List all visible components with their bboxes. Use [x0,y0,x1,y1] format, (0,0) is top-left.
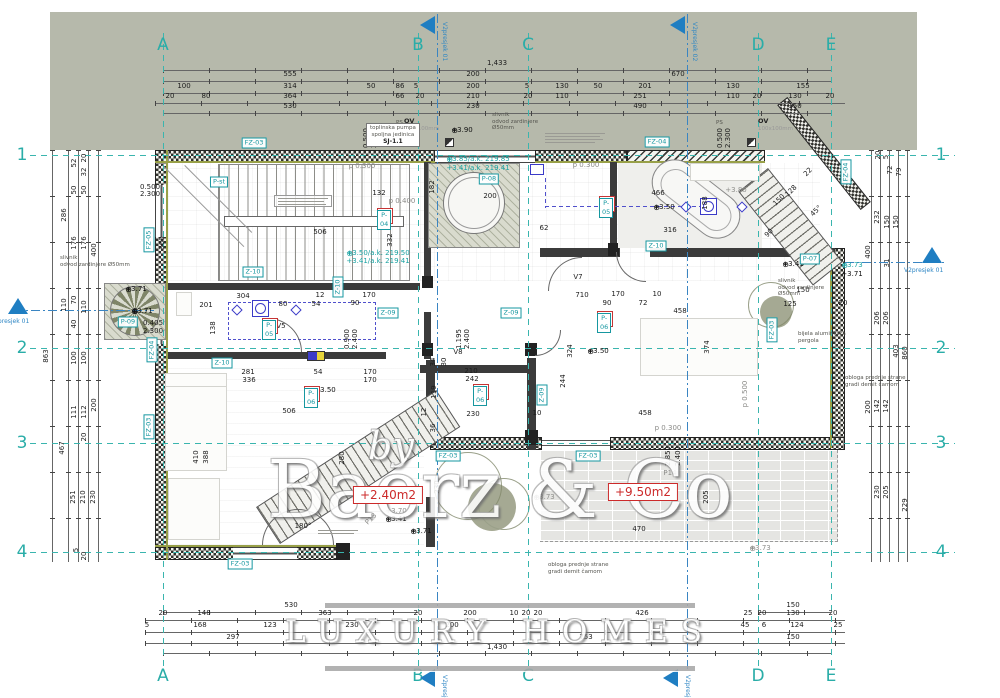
note-line: OV [758,118,793,126]
dim-label: 125 [783,300,796,308]
note-line: obloga prednje strane [548,562,609,569]
note-text: slivnikodvod zardinjereØ50mm [492,112,538,132]
dim-label: 130 [726,82,739,90]
room-type-tag: P-06 [473,386,487,406]
level-symbol-icon: ⊕ [533,493,540,502]
level-mark: ⊕+3.90 [451,126,472,134]
level-mark: ⊕+3.50 [587,347,608,355]
dim-label: 230 [873,485,881,498]
dim-label: 200 [463,609,476,617]
dim-label: 280 [338,451,346,464]
dim-label: 2.400 [674,446,682,466]
room-type-tag: P-05 [262,320,276,340]
dim-label: 20 [80,433,88,442]
detail-tag: Z-10 [212,358,233,369]
dim-label: 20 [829,609,838,617]
level-mark: ⊕+3.50 [653,203,674,211]
dim-label: 100 [80,351,88,364]
dim-label: 123 [263,621,276,629]
dim-label: P14 [663,469,676,477]
dim-label: 142 [873,399,881,412]
note-text: PS [716,120,723,127]
level-symbol-icon: ⊕ [841,261,848,270]
dim-label: 201 [199,301,212,309]
detail-tag: P-09 [118,317,138,328]
dim-label: 188 [701,196,709,209]
dim-label: 10 [533,409,542,417]
dim-label: p 0.400 [389,197,416,205]
dim-label: 242 [465,375,478,383]
dim-label: 5 [145,621,149,629]
note-line: slivnik [492,112,538,119]
dim-label: 176 [80,236,88,249]
dim-label: 10 [510,609,519,617]
dim-label: 458 [638,409,651,417]
dim-label: 251 [633,92,646,100]
dim-label: 297 [226,633,239,641]
dim-label: 332 [386,233,394,246]
dim-label: 1.195 [455,329,463,349]
dim-label: 200 [466,82,479,90]
dim-label: 34 [429,358,437,367]
detail-tag: Z-10 [243,267,264,278]
dim-label: 150 [786,601,799,609]
level-symbol-icon: ⊕ [446,155,453,164]
room-type-tag: P-06 [597,313,611,333]
dim-label: 230 [466,410,479,418]
detail-tag: Z-09 [501,308,522,319]
level-mark: ⊕+3.41 [385,515,406,523]
dim-label: 2.400 [351,329,359,349]
dim-label: V7 [573,273,582,281]
detail-tag: FZ-05 [144,228,155,253]
level-symbol-icon: ⊕ [125,285,132,294]
dim-label: 364 [283,92,296,100]
dim-label: 150 [892,215,900,228]
note-text: obloga prednje stranegradi demit čamom [548,562,609,575]
dim-label: 410 [192,450,200,463]
note-text: slivnikodvod zardinjere Ø50mm [60,255,130,268]
detail-tag: FZ-03 [228,559,253,570]
dim-label: p 0.500 [741,381,749,408]
dim-label: 50 [367,82,376,90]
level-symbol-icon: ⊕ [410,527,417,536]
room-type-tag: P-04 [377,210,391,230]
dim-label: 20 [874,151,882,160]
dim-label: 286 [60,208,68,221]
dim-label: 20 [80,154,88,163]
dim-label: 230 [466,102,479,110]
dim-label: 210 [464,367,477,375]
dim-label: 0.405 [143,319,163,327]
dim-label: 5 [882,155,890,159]
area-badge: +2.40m2 [353,486,423,504]
dim-label: 30 [440,358,448,367]
dim-label: 281 [241,368,254,376]
dim-label: 130 [786,609,799,617]
dim-label: 130 [788,92,801,100]
note-text: slivnikodvod zardinjereØ50mm [778,278,824,298]
dim-label: 200 [483,192,496,200]
dim-label: 54 [314,368,323,376]
dim-label: 230 [89,490,97,503]
dim-label: 6 [762,621,766,629]
dim-label: 70 [70,296,78,305]
dim-label: 400 [864,245,872,258]
dim-label: 20 [166,92,175,100]
level-mark: ⊕+3.73 [841,261,862,269]
dim-label: 20 [524,92,533,100]
dim-label: 232 [873,210,881,223]
note-line: gradi demit čamom [845,382,906,389]
note-line: gradi demit čamom [548,569,609,576]
dim-label: 316 [663,226,676,234]
dim-label: 470 [632,525,645,533]
dim-label: 200 [445,621,458,629]
detail-tag: FZ-03 [144,415,155,440]
dim-label: 54 [312,300,321,308]
dim-label: 45° [809,204,823,218]
note-line: PS [716,120,723,127]
dim-label: 31 [883,259,891,268]
note-line: slivnik [778,278,824,285]
dim-label: 5 [414,82,418,90]
level-mark: +3.80 [725,186,746,194]
dim-label: 72 [886,166,894,175]
level-mark: +3.41/a.k. 219.41 [346,257,409,265]
dim-label: 200 [466,70,479,78]
level-mark: ⊕+3.50/a.k. 219.50 [346,249,409,257]
dim-label: 206 [882,311,890,324]
dim-label: 426 [635,609,648,617]
dim-label: 62 [540,224,549,232]
dim-label: 90 [603,299,612,307]
dim-label: 360 [158,236,166,249]
note-line: Ø50mm [778,291,824,298]
detail-tag: FZ-03 [436,451,461,462]
dim-label: 710 [575,291,588,299]
note-line: pergola [798,338,846,345]
dim-label: 170 [363,368,376,376]
level-symbol-icon: ⊕ [385,515,392,524]
dim-label: 80 [202,92,211,100]
level-mark: +3.41/a.k. 219.41 [446,164,509,172]
note-title: SJ-1.1 [370,138,416,145]
level-mark: ⊕+3.73 [533,493,554,501]
level-symbol-icon: ⊕ [131,307,138,316]
dim-label: p 0.300 [655,424,682,432]
dim-label: 530 [284,601,297,609]
dim-label: 200 [864,400,872,413]
dim-label: 112 [80,405,88,418]
dim-label: 40 [70,320,78,329]
dim-label: 176 [70,236,78,249]
note-line: 100x100mm [758,126,793,133]
dim-label: 230 [433,480,441,493]
dim-label: 20 [80,552,88,561]
note-line: odvod zardinjere Ø50mm [60,262,130,269]
dim-label: 2.850 [664,446,672,466]
note-line: Ø50mm [492,125,538,132]
dim-label: 110 [60,298,68,311]
dim-label: 2.300 [140,190,160,198]
dim-label: P13 [364,512,379,527]
detail-tag: Z-10 [646,241,667,252]
dim-label: 90 [351,299,360,307]
room-type-tag: P-06 [304,388,318,408]
dim-label: 388 [202,450,210,463]
dim-label: 20 [826,92,835,100]
dim-label: 124 [790,621,803,629]
detail-tag: FZ-04 [645,137,670,148]
dim-label: 1,433 [487,59,507,67]
dim-label: 0.500 [716,128,724,148]
dim-label: 100 [70,351,78,364]
floor-plan-canvas: AABBCCDDEE11223344V2presjek 01V2presjek … [0,0,1000,698]
dim-label: 324 [566,344,574,357]
dim-label: 2.400 [463,329,471,349]
dim-label: 20 [159,609,168,617]
note-text: OV100x100mm [758,118,793,132]
detail-tag: FZ-03 [576,451,601,462]
level-mark: ⊕+3.71 [125,285,146,293]
dim-label: 201 [638,82,651,90]
dim-label: 863 [42,349,50,362]
dim-label: 20 [839,299,848,307]
dim-label: 148 [197,609,210,617]
dim-label: 170 [363,376,376,384]
dim-label: 100 [177,82,190,90]
note-text: bijela aluminijskapergola [798,331,846,344]
note-text: toplinska pumpaspoljna jedinicaSJ-1.1 [366,123,420,147]
detail-tag: FZ-04 [147,338,158,363]
dim-label: 336 [242,376,255,384]
area-badge: +9.50m2 [608,483,678,501]
dim-label: 210 [79,490,87,503]
dim-label: 80 [279,300,288,308]
dim-label: 32 [80,168,88,177]
dim-label: 205 [882,485,890,498]
dim-label: 20 [416,92,425,100]
detail-tag: FZ-03 [242,138,267,149]
dim-label: 155 [796,82,809,90]
detail-tag: P-07 [800,254,820,265]
dim-label: 150 [788,102,801,110]
dim-label: 403 [892,344,900,357]
dim-label: 363 [318,609,331,617]
level-symbol-icon: ⊕ [587,347,594,356]
dim-label: 1,430 [487,643,507,651]
dim-label: 170 [362,291,375,299]
dim-label: 506 [282,407,295,415]
level-mark: ⊕+3.71 [131,307,152,315]
dim-label: 304 [236,292,249,300]
detail-tag: Z-09 [537,385,548,406]
level-mark: +3.70 [385,507,406,515]
dim-label: 467 [58,441,66,454]
note-text: obloga prednje stranegradi demit čamom [845,375,906,388]
dim-label: 168 [193,621,206,629]
dim-label: 72 [639,299,648,307]
dim-label: 210 [466,92,479,100]
dim-label: 12 [316,291,325,299]
dim-label: 86 [396,82,405,90]
dim-label: 506 [313,228,326,236]
dim-label: 111 [70,405,78,418]
level-symbol-icon: ⊕ [749,544,756,553]
level-symbol-icon: ⊕ [451,126,458,135]
dim-label: 20 [414,609,423,617]
dim-label: 530 [283,102,296,110]
dim-label: 45 [741,621,750,629]
note-line: slivnik [60,255,130,262]
dim-label: 5 [525,82,529,90]
dim-label: 90 [763,227,775,239]
dim-label: 555 [283,70,296,78]
dim-label: 110 [726,92,739,100]
dim-label: 138 [209,321,217,334]
dim-label: 66 [396,92,405,100]
dim-label: 458 [673,307,686,315]
dim-label: 20 [534,609,543,617]
dim-label: 132 [372,189,385,197]
dim-label: 200 [90,398,98,411]
dim-label: 251 [69,490,77,503]
dim-label: 36 [429,424,437,433]
dim-label: 244 [559,374,567,387]
detail-tag: Z-10 [333,277,344,298]
dim-label: 230 [345,621,358,629]
dim-label: 50 [594,82,603,90]
dim-label: 205 [702,490,710,503]
level-mark: ⊕+3.71 [410,527,431,535]
dim-label: 52 [70,159,78,168]
dim-label: 50 [80,186,88,195]
dim-label: 119 [430,385,438,398]
dim-label: 206 [873,311,881,324]
dim-label: 860 [901,346,909,359]
dim-label: 25 [744,609,753,617]
note-line: toplinska pumpa [370,125,416,132]
dim-label: 0.900 [343,329,351,349]
dim-label: 2.300 [143,327,163,335]
dim-label: 110 [80,300,88,313]
level-mark: ⊕+3.85/a.k. 219.85 [446,155,509,163]
dim-label: 150 [786,633,799,641]
dim-label: p 0.300 [573,161,600,169]
level-mark: +3.71 [841,270,862,278]
dim-label: 20 [758,609,767,617]
dim-label: 20 [753,92,762,100]
dim-label: 670 [671,70,684,78]
dim-label: 374 [703,340,711,353]
dim-label: 466 [651,189,664,197]
level-mark: ⊕+3.73 [749,544,770,552]
dim-label: 12 [420,408,428,417]
dim-label: 5 [72,548,80,552]
annotation-layer: 1,43355520067010031450865200513050201130… [0,0,1000,698]
dim-label: 25 [834,621,843,629]
dim-label: 229 [901,498,909,511]
dim-label: p 0.300 [349,162,376,170]
dim-label: V8 [453,348,462,356]
detail-tag: Z-09 [378,308,399,319]
dim-label: 490 [633,102,646,110]
detail-tag: FZ-03 [767,318,778,343]
detail-tag: P-08 [479,174,499,185]
dim-label: 10 [653,290,662,298]
note-line: spoljna jedinica [370,132,416,139]
dim-label: 182 [428,180,436,193]
detail-tag: FZ-04 [841,160,852,185]
detail-tag: P-st [210,177,228,188]
room-type-tag: P-05 [599,198,613,218]
dim-label: 79 [895,168,903,177]
note-line: bijela aluminijska [798,331,846,338]
dim-label: 170 [611,290,624,298]
level-symbol-icon: ⊕ [782,260,789,269]
dim-label: 314 [283,82,296,90]
dim-label: 110 [555,92,568,100]
dim-label: 753 [579,633,592,641]
dim-label: 142 [882,399,890,412]
dim-label: 50 [70,186,78,195]
dim-label: 150 [883,215,891,228]
dim-label: 180° [295,522,312,530]
dim-label: 20 [522,609,531,617]
dim-label: 22 [802,166,814,178]
dim-label: 130 [555,82,568,90]
note-line: obloga prednje strane [845,375,906,382]
level-symbol-icon: ⊕ [653,203,660,212]
dim-label: 2.300 [724,128,732,148]
